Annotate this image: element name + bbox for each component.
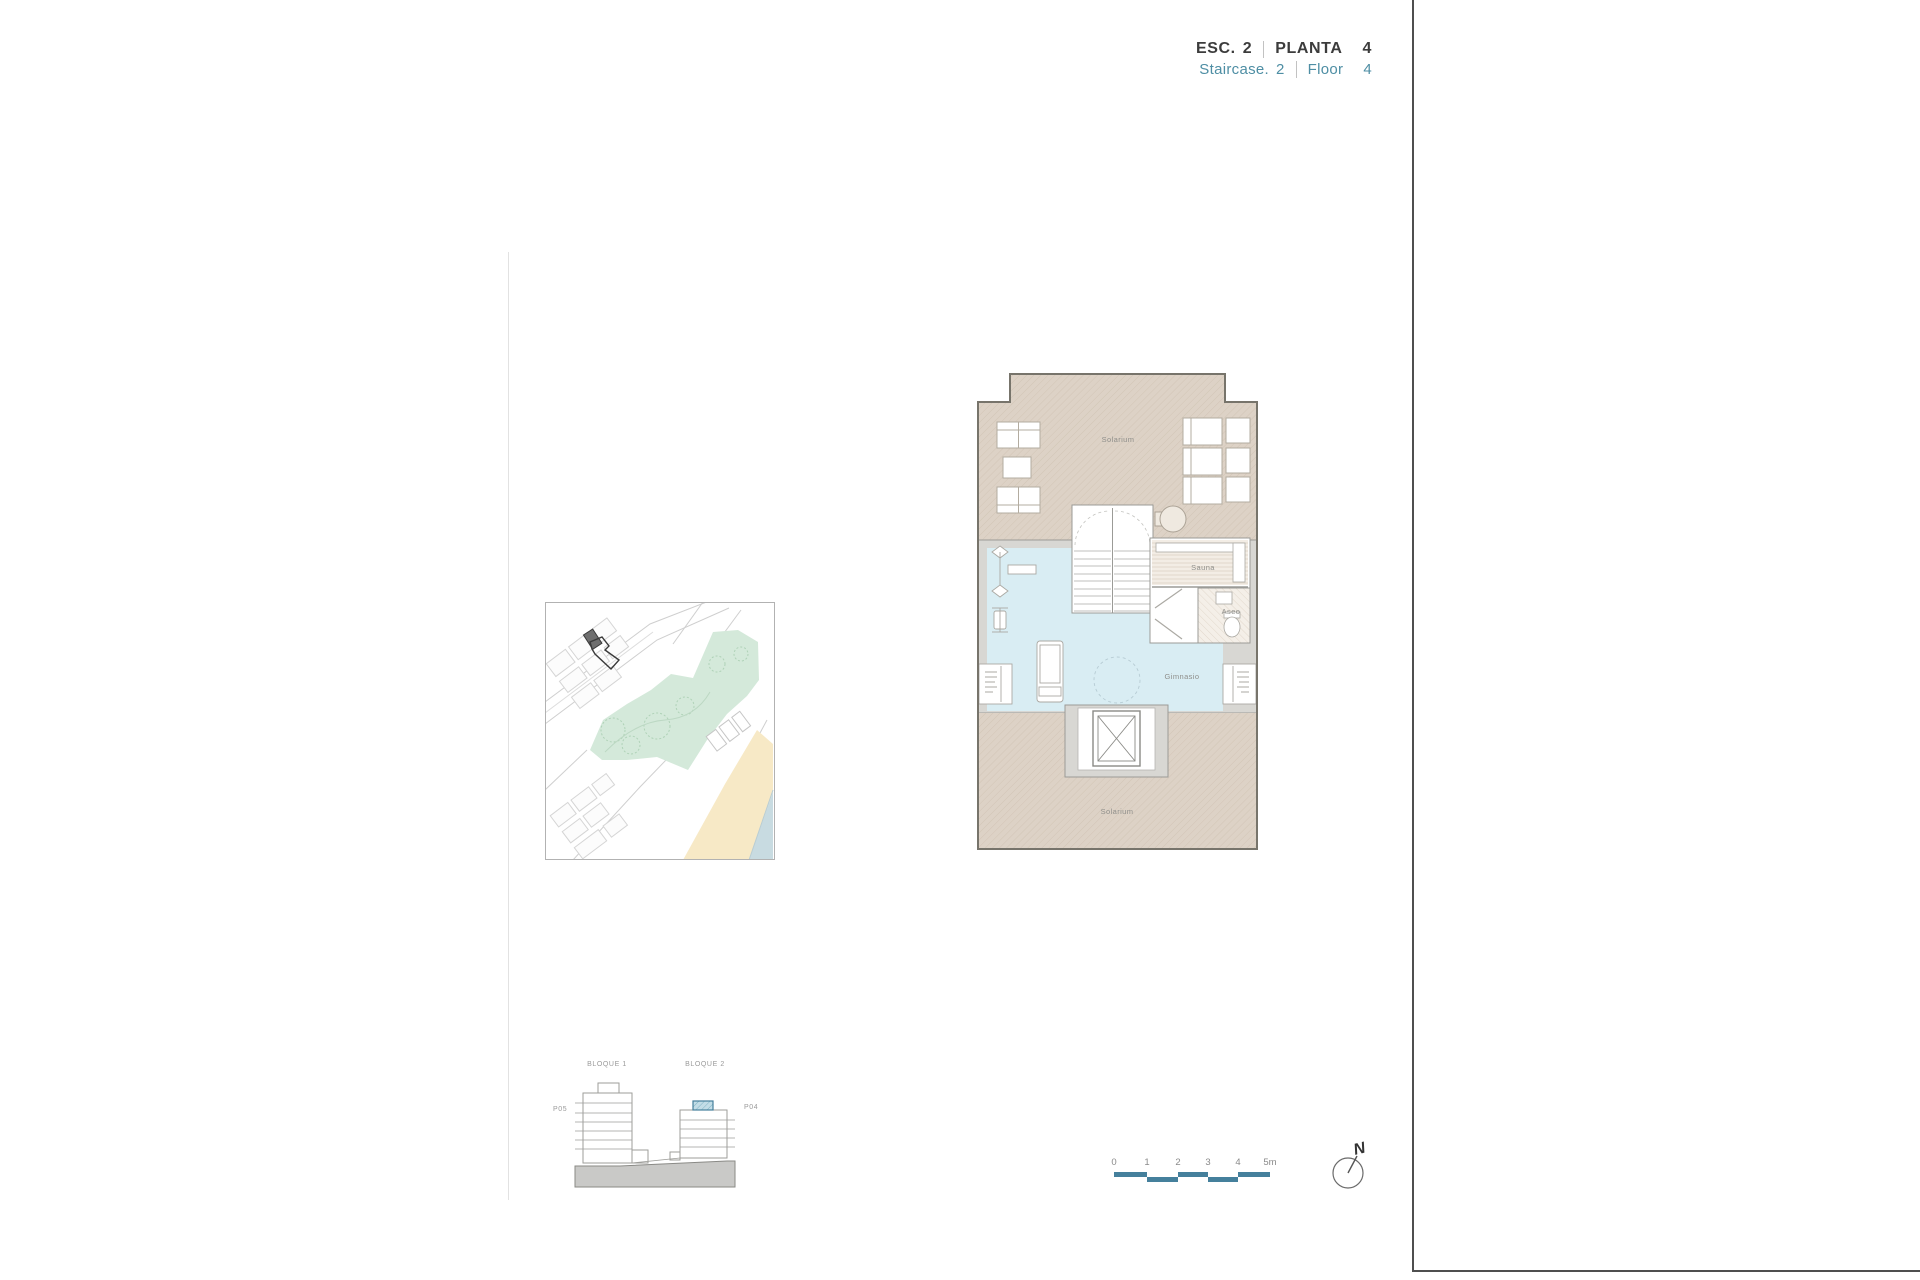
sauna-aseo-block [1150,538,1250,643]
aseo-toilet [1224,617,1240,637]
sauna-label: Sauna [1191,563,1215,572]
staircase-value: 2 [1276,61,1285,78]
title-line-es: ESC. 2 PLANTA 4 [1196,40,1372,58]
left-floor-label: P05 [553,1106,567,1113]
esc-label: ESC. [1196,40,1236,58]
sheet-right-border [1412,0,1414,1270]
north-label: N [1352,1139,1368,1158]
block2-label: BLOQUE 2 [685,1061,725,1068]
floor-label: Floor [1308,61,1344,78]
site-location-map [545,602,775,860]
floor-value: 4 [1363,61,1372,78]
sheet-fold-line [508,252,509,1200]
sauna-bench-side [1233,543,1245,582]
title-divider [1263,41,1264,58]
staircase-label: Staircase. [1199,61,1269,78]
drawing-sheet: ESC. 2 PLANTA 4 Staircase. 2 Floor 4 [0,0,1920,1280]
solarium-top-label: Solarium [1102,435,1135,444]
title-block: ESC. 2 PLANTA 4 Staircase. 2 Floor 4 [1196,40,1372,78]
right-floor-label: P04 [744,1104,758,1111]
sheet-bottom-border [1412,1270,1920,1272]
elevation-block2 [670,1110,735,1160]
planta-value: 4 [1363,40,1373,58]
weight-machine-left [979,664,1012,704]
scale-bar: 0 1 2 3 4 5m [1105,1152,1285,1192]
aseo-label: Aseo [1222,607,1241,616]
exercise-bike [992,608,1008,632]
scale-tick-5m: 5m [1263,1157,1276,1168]
aseo-sink [1216,592,1232,604]
sun-loungers-right [1183,418,1250,504]
block1-label: BLOQUE 1 [587,1061,627,1068]
title-line-en: Staircase. 2 Floor 4 [1196,61,1372,78]
scale-tick-0: 0 [1111,1157,1116,1168]
planta-label: PLANTA [1275,40,1342,58]
title-divider-en [1296,61,1297,78]
scale-tick-1: 1 [1144,1157,1149,1168]
elevation-highlighted-floor [693,1101,713,1110]
gym-label: Gimnasio [1165,672,1200,681]
scale-tick-4: 4 [1235,1157,1240,1168]
elevator-core [1065,705,1168,777]
scale-tick-3: 3 [1205,1157,1210,1168]
floor-plan: Solarium Sauna Aseo Gimnasio Solarium [975,370,1265,855]
building-elevation: BLOQUE 1 BLOQUE 2 P05 P04 [548,1048,798,1198]
sauna-bench-top [1156,543,1243,552]
esc-value: 2 [1243,40,1253,58]
scale-tick-2: 2 [1175,1157,1180,1168]
north-arrow-icon: N [1325,1135,1385,1195]
elevation-block1 [575,1083,648,1163]
elevation-ground [575,1161,735,1187]
staircase [1072,505,1153,613]
scale-bar-segments [1114,1172,1270,1182]
treadmill [1037,641,1063,702]
solarium-bottom-label: Solarium [1101,807,1134,816]
weight-machine-right [1223,664,1256,704]
